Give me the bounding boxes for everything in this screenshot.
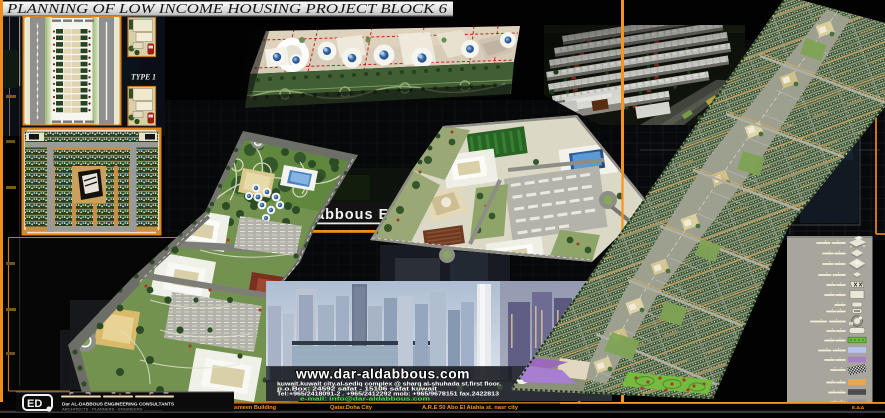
svg-text:abbous E: abbous E — [316, 207, 389, 223]
svg-text:e-mail: info@dar-aldabbous.com: e-mail: info@dar-aldabbous.com — [300, 397, 430, 403]
svg-text:Qatar.Doha City: Qatar.Doha City — [330, 405, 372, 411]
svg-text:ARCHITECTS - PLANNERS - ENGINE: ARCHITECTS - PLANNERS - ENGINEERS ......… — [62, 408, 162, 412]
svg-text:Dar AL-DABBOUS ENGINEERING C: Dar AL-DABBOUS ENGINEERING CONSULTANTS — [62, 402, 174, 407]
svg-text:E.Δ.Δ: E.Δ.Δ — [852, 405, 865, 410]
svg-text:TYPE 1: TYPE 1 — [131, 73, 156, 82]
svg-text:PLANNING OF LOW INCOME HOUSING: PLANNING OF LOW INCOME HOUSING PROJECT B… — [6, 1, 448, 16]
svg-text:www.dar-aldabbous.com: www.dar-aldabbous.com — [295, 367, 470, 382]
svg-text:ED: ED — [27, 398, 42, 410]
svg-text:A.R.E 50 Abo El Atahia st. nas: A.R.E 50 Abo El Atahia st. nasr city — [422, 405, 518, 411]
